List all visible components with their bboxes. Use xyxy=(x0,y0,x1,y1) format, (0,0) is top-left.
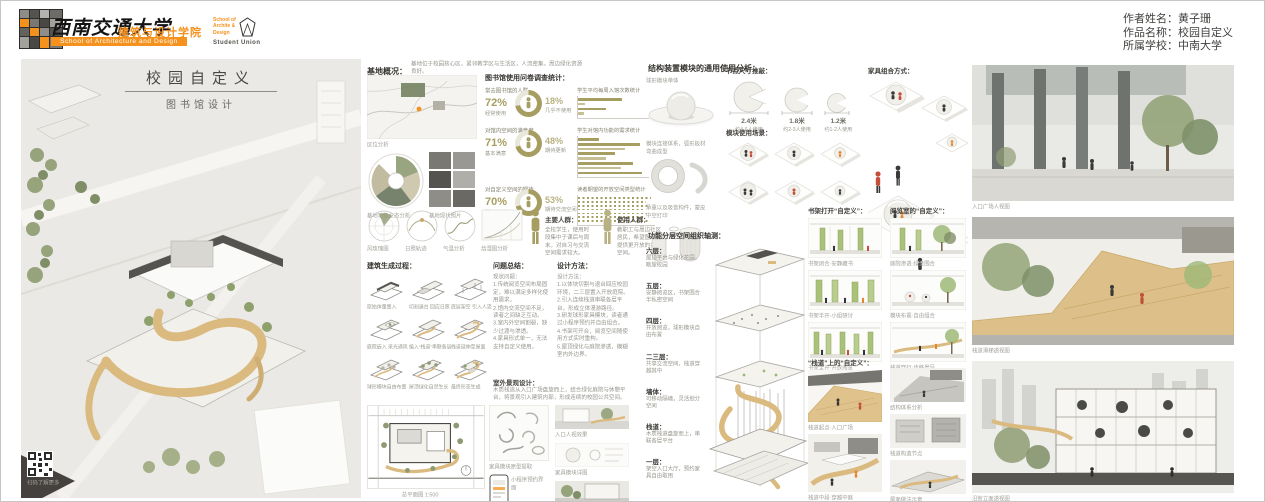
method-heading: 设计方法： xyxy=(557,261,629,271)
site-plan: 总平面图 1:500 xyxy=(367,405,485,497)
phone-label: 小程序预约界面 xyxy=(511,475,547,502)
location-map xyxy=(367,75,477,139)
module-label-3: 承重以及吸音构件，蒙皮中空打印 xyxy=(646,203,709,219)
survey-row-1: 常去图书馆的人群72%经常使用 18%几乎不使用 学生平均每周入馆次数统计 xyxy=(485,86,629,119)
project-subtitle: 图书馆设计 xyxy=(117,96,285,111)
ring-module-drawing xyxy=(646,157,716,195)
floor-1: 一层：架空入口大厅，预约家具自由取用 xyxy=(646,456,714,482)
ramp-column-2: 结构体系分析 栈道构造节点 屋面做法示意 xyxy=(890,357,968,502)
qr-code: 扫码了解更多 xyxy=(27,451,63,487)
furniture-heading: 家具组合方式： xyxy=(868,65,968,75)
section-heading-2: 阅览室的“自定义”： xyxy=(890,205,968,215)
site-maps: 区位分析 基地功能业态分析 xyxy=(367,75,479,220)
thumbnail-column: 入口人视效果 家具模块详图 沿街人视效果 xyxy=(555,405,629,502)
donut-chart-2 xyxy=(515,130,542,157)
gen-step-3: 底层架空 引入人流 xyxy=(451,275,490,312)
module-label-2: 模块连接体系，弧形板材弯曲成型 xyxy=(646,139,709,155)
map-caption: 区位分析 xyxy=(367,140,468,148)
problem-text: 现状问题： 1.传统阅览空间布局固定，难以满足多样化使用需求。 2.馆内交流空间… xyxy=(493,274,552,351)
project-title-block: 校园自定义 图书馆设计 xyxy=(117,67,285,111)
gen-step-5: 植入“栈道”串联各层 xyxy=(409,315,448,352)
module-label-1: 球形模块单体 xyxy=(646,76,711,84)
poster-left: 校园自定义 图书馆设计 扫码了解更多 xyxy=(21,59,629,498)
method-text: 设计方法： 1.以体块切割与退台回应校园环境，二三层置入开放庭院。 2.引入连续… xyxy=(557,274,629,359)
gen-step-1: 原始体量置入 xyxy=(367,275,406,312)
title-divider xyxy=(125,91,277,92)
ramp-heading: “栈道”上的“自定义”： xyxy=(808,357,884,367)
sphere-module-drawing xyxy=(646,85,716,131)
donut-chart-1 xyxy=(515,90,542,117)
dim-item-1: 2.4米约4-6人使用 xyxy=(726,79,772,134)
thumb-1: 入口人视效果 xyxy=(555,405,629,439)
gen-step-8: 屋顶绿化自然生长 xyxy=(409,355,448,392)
climate-analysis-row: 风玫瑰图 日照轨迹 气温分析 焓湿图分析 xyxy=(367,209,629,259)
floor-4: 四层：开放阅览，球形模块自由布置 xyxy=(646,315,714,341)
gen-step-9: 最终形态生成 xyxy=(451,355,490,392)
phone-mockup xyxy=(489,474,509,502)
analysis-panel: 基地概况： 基地位于校园核心区，紧邻教学区与生活区，人流密集，周边绿化资源良好。… xyxy=(367,59,629,498)
author-info: 作者姓名：黄子珊 作品名称：校园自定义 所属学校：中南大学 xyxy=(1123,13,1233,54)
render-ramp: 栈道滑梯透视图 xyxy=(972,217,1234,355)
author-name-row: 作者姓名：黄子珊 xyxy=(1123,13,1233,27)
floor-23: 二三层：共享交流空间，栈道穿越其中 xyxy=(646,351,714,377)
section-heading-1: 书架打开“自定义”： xyxy=(808,205,884,215)
gen-step-4: 庭院嵌入 采光通风 xyxy=(367,315,406,352)
survey-heading: 图书馆使用问卷调查统计： xyxy=(485,73,629,83)
ramp-column-1: “栈道”上的“自定义”： 栈道起点·入口广场 栈道中段·穿越中庭 xyxy=(808,357,884,502)
landscape-note: 室外景观设计： 木质栈道从入口广场盘旋而上，结合绿化庭院与休憩平台，将景观引入建… xyxy=(493,377,629,404)
landscape-heading: 室外景观设计： xyxy=(493,377,629,387)
survey-row-2: 对馆内空间的满意度71%基本满意 48%期待更新 学生对馆内功能的需求统计 xyxy=(485,126,629,178)
psychrometric-chart: 焓湿图分析 xyxy=(481,209,523,253)
exploded-axonometric xyxy=(708,239,808,495)
student-union-label: Student Union xyxy=(213,40,265,46)
shapes-label: 家具模块原型提取 xyxy=(489,462,545,470)
gen-step-6: 栈道延伸至屋面 xyxy=(451,315,490,352)
poster-sheet: 西南交通大学 建筑与设计学院 School of Architecture an… xyxy=(0,0,1265,502)
project-title: 校园自定义 xyxy=(117,67,285,88)
render-elevation: 沿街立面透视图 xyxy=(972,361,1234,502)
school-row: 所属学校：中南大学 xyxy=(1123,40,1233,54)
floor-list: 六层：屋顶平台与绿化花园，眺望校园 五层：安静阅览区，书架围合半私密空间 四层：… xyxy=(646,245,714,491)
section-column-2: 阅览室的“自定义”： 庭院渗透·绿意围合 模块布置·自由组合 栈道穿行·步移景异 xyxy=(890,205,968,372)
layer-walls: 墙体：可移动隔墙，灵活划分空间 xyxy=(646,386,714,412)
layer-walkway: 栈道：木质栈道盘旋而上，串联各层平台 xyxy=(646,421,714,447)
module-shape-studies: 家具模块原型提取 小程序预约界面 xyxy=(489,405,551,502)
problem-heading: 问题总结： xyxy=(493,261,553,271)
sun-path-diagram: 日照轨迹 xyxy=(405,209,439,253)
floor-6: 六层：屋顶平台与绿化花园，眺望校园 xyxy=(646,245,714,271)
student-union-badge: School of Archite & Design Student Union xyxy=(213,17,265,46)
qr-caption: 扫码了解更多 xyxy=(27,478,59,486)
gen-step-2: 切割退台 回应日照 xyxy=(409,275,448,312)
poster-right: 结构装置模块的通用使用分析： 球形模块单体 模块连接体系，弧形板材弯曲成型 承重… xyxy=(646,59,1236,498)
crowd-1: 主要人群：全校学生，使用时段集中于课后与周末，对自习与交流空间需求较大。 xyxy=(529,209,597,261)
dimension-study: 节点尺寸推敲： 2.4米约4-6人使用 1.8米约2-3人使用 1.2米约1-2… xyxy=(726,65,862,134)
temperature-diagram: 气温分析 xyxy=(443,209,477,253)
work-title-row: 作品名称：校园自定义 xyxy=(1123,27,1233,41)
scene-block: 模块使用场景： xyxy=(726,127,862,214)
thumb-2: 家具模块详图 xyxy=(555,443,629,477)
floor-5: 五层：安静阅览区，书架围合半私密空间 xyxy=(646,280,714,306)
siteplan-label: 总平面图 1:500 xyxy=(367,490,473,498)
landscape-text: 木质栈道从入口广场盘旋而上，结合绿化庭院与休憩平台，将景观引入建筑内部，形成连续… xyxy=(493,387,631,402)
dimension-heading: 节点尺寸推敲： xyxy=(726,65,862,75)
problem-summary: 问题总结： 现状问题： 1.传统阅览空间布局固定，难以满足多样化使用需求。 2.… xyxy=(493,261,553,358)
gen-step-7: 球形模块自由布置 xyxy=(367,355,406,392)
generation-heading: 建筑生成过程： xyxy=(367,261,489,271)
thumb-3: 沿街人视效果 xyxy=(555,481,629,502)
hero-axonometric-rendering: 校园自定义 图书馆设计 扫码了解更多 xyxy=(21,59,361,498)
bar-chart-2: 学生对馆内功能的需求统计 xyxy=(577,126,649,178)
badge-text: School of Archite & Design xyxy=(213,17,236,36)
render-entrance: 入口广场人视图 xyxy=(972,65,1234,211)
bar-chart-1: 学生平均每周入馆次数统计 xyxy=(577,86,649,119)
school-name-en: School of Architecture and Design xyxy=(51,37,187,46)
section-column-1: 书架打开“自定义”： 书架闭合·安静藏书 书架半开·小组研讨 书架全开·开放阅览 xyxy=(808,205,884,372)
design-method: 设计方法： 设计方法： 1.以体块切割与退台回应校园环境，二三层置入开放庭院。 … xyxy=(557,261,629,366)
scene-heading: 模块使用场景： xyxy=(726,127,862,137)
generation-process: 建筑生成过程： 原始体量置入 切割退台 回应日照 底层架空 引入人流 庭院嵌入 … xyxy=(367,261,489,392)
wind-rose-diagram: 风玫瑰图 xyxy=(367,209,401,253)
render-column: 入口广场人视图 栈道滑梯透视图 xyxy=(972,65,1234,502)
student-union-logomark xyxy=(239,17,256,38)
